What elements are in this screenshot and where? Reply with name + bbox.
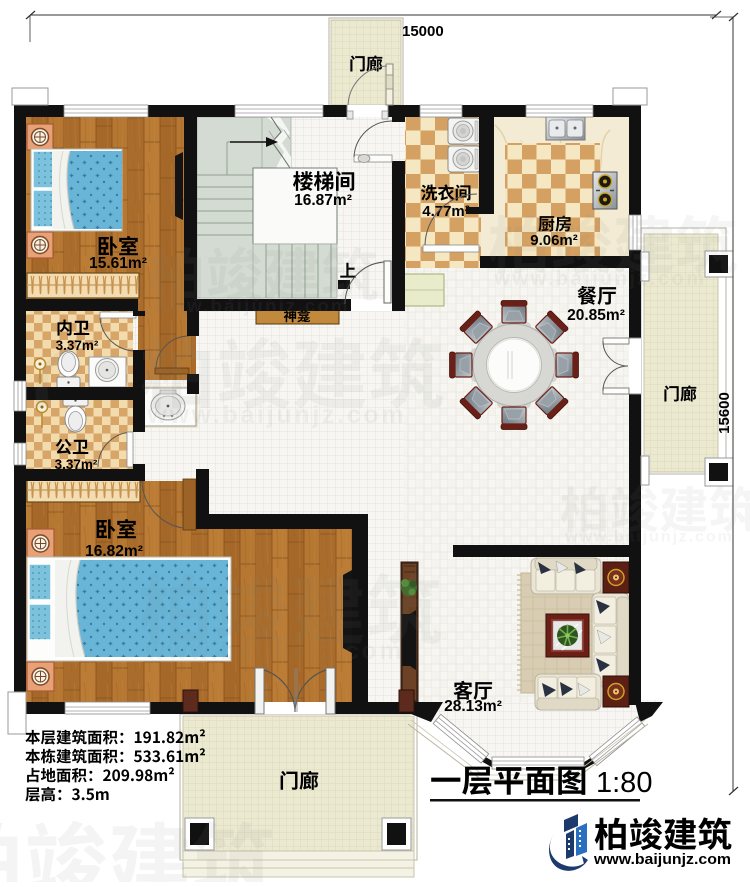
svg-text:15600: 15600 bbox=[716, 392, 733, 434]
svg-text:www.baijunjz.com: www.baijunjz.com bbox=[493, 268, 706, 290]
svg-text:1:80: 1:80 bbox=[596, 767, 652, 799]
svg-text:www.baijunjz.com: www.baijunjz.com bbox=[153, 295, 350, 316]
svg-text:20.85m²: 20.85m² bbox=[567, 307, 625, 324]
svg-text:15.61m²: 15.61m² bbox=[89, 255, 147, 272]
svg-text:28.13m²: 28.13m² bbox=[444, 698, 502, 715]
svg-text:www.baijunjz.com: www.baijunjz.com bbox=[564, 528, 734, 546]
svg-text:www.baijunjz.com: www.baijunjz.com bbox=[145, 638, 405, 665]
svg-text:15000: 15000 bbox=[402, 23, 444, 40]
svg-text:www.baijunjz.com: www.baijunjz.com bbox=[593, 852, 731, 868]
svg-text:www.baijunjz.com: www.baijunjz.com bbox=[147, 402, 407, 429]
svg-text:16.82m²: 16.82m² bbox=[85, 543, 143, 560]
svg-text:16.87m²: 16.87m² bbox=[294, 192, 352, 209]
svg-text:4.77m²: 4.77m² bbox=[422, 203, 470, 220]
